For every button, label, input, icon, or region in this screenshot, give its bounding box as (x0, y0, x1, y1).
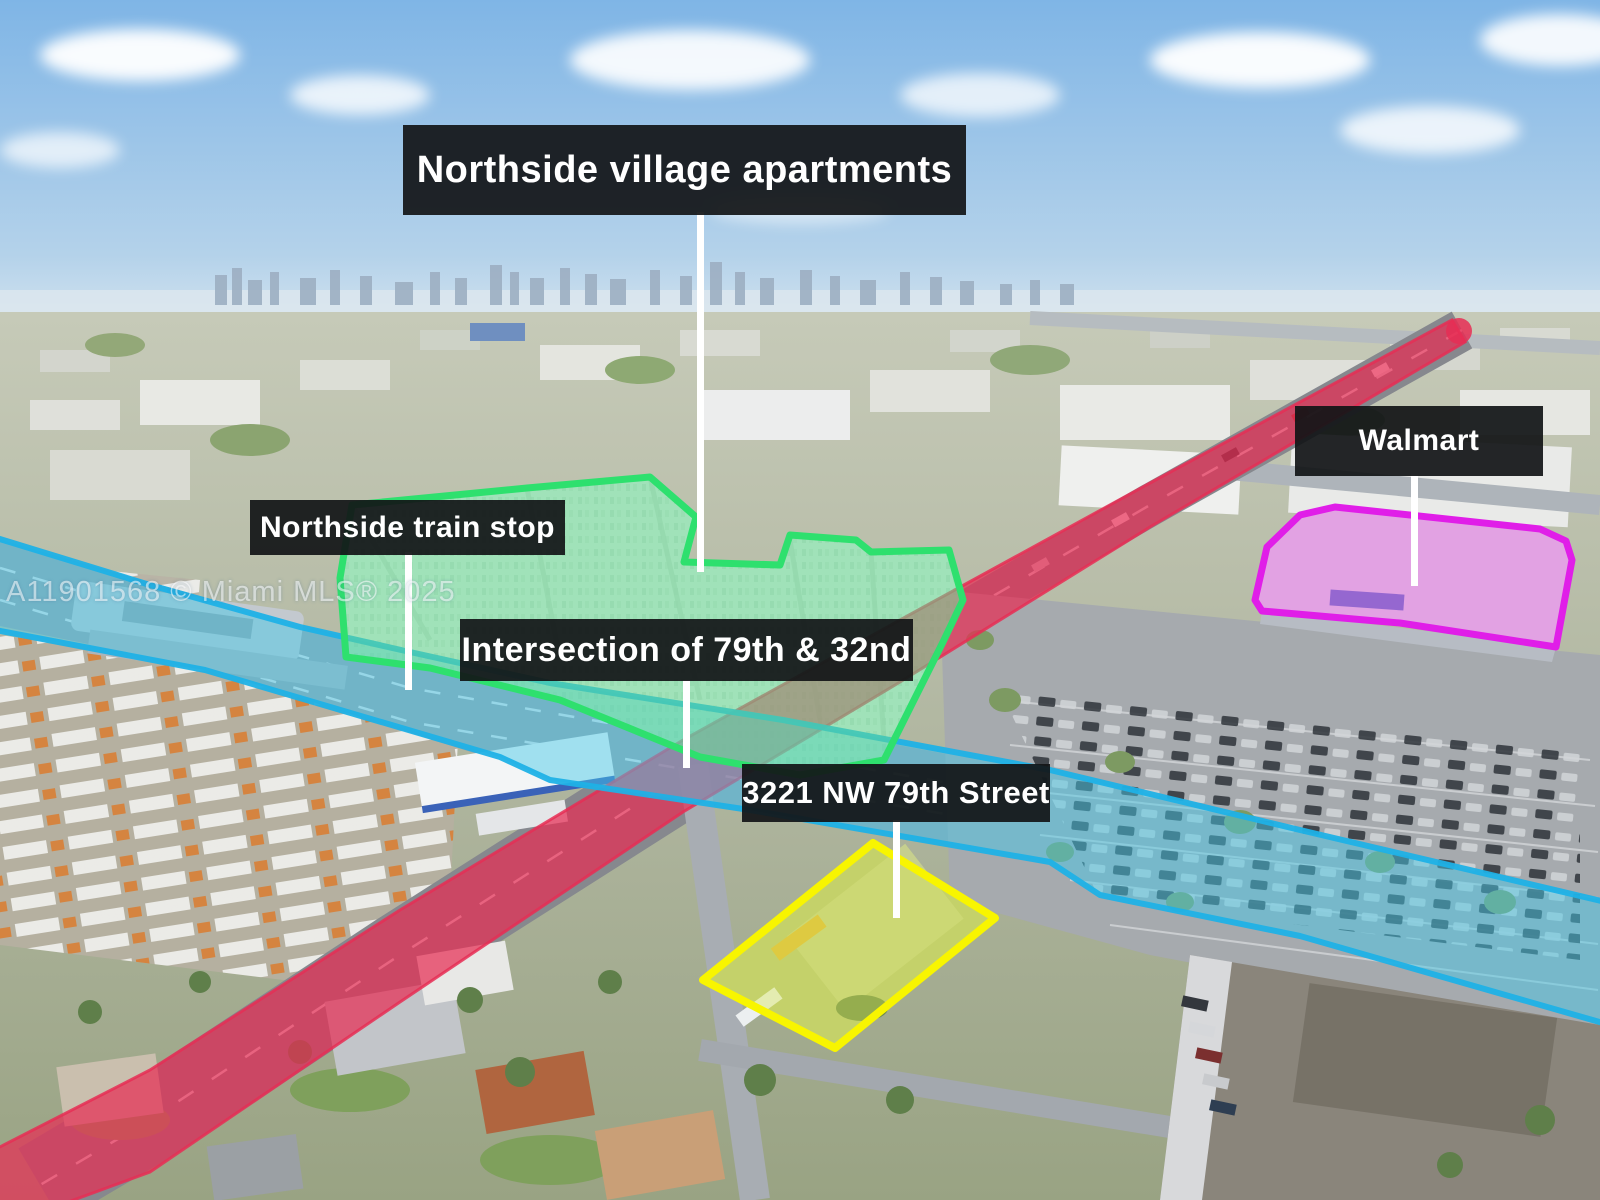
address-label: 3221 NW 79th Street (742, 764, 1050, 822)
train-stop-leader-line (405, 552, 412, 690)
aerial-map-image: Northside village apartments Walmart Nor… (0, 0, 1600, 1200)
mls-watermark: A11901568 © Miami MLS® 2025 (6, 576, 456, 609)
apartments-label: Northside village apartments (403, 125, 966, 215)
property-boundary-highlight (703, 843, 995, 1048)
intersection-leader-line (683, 680, 690, 768)
train-stop-label: Northside train stop (250, 500, 565, 555)
79th-street-highlight-end (1446, 318, 1472, 344)
walmart-label: Walmart (1295, 406, 1543, 476)
walmart-leader-line (1411, 474, 1418, 586)
address-leader-line (893, 820, 900, 918)
intersection-label: Intersection of 79th & 32nd (460, 619, 913, 681)
apartments-leader-line (697, 212, 704, 572)
